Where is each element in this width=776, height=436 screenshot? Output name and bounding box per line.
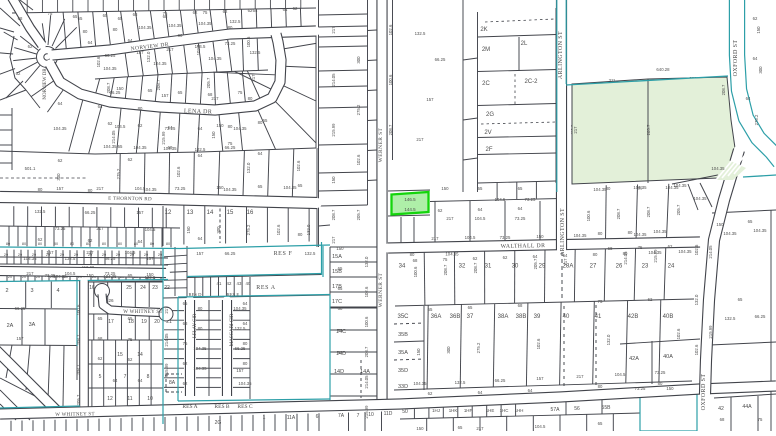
svg-text:40: 40	[563, 314, 570, 320]
svg-text:205.7: 205.7	[533, 258, 538, 269]
svg-text:RES B: RES B	[214, 404, 229, 410]
svg-text:62: 62	[28, 44, 33, 49]
svg-text:80: 80	[248, 96, 253, 101]
svg-text:75: 75	[638, 245, 643, 250]
svg-text:75: 75	[338, 328, 343, 333]
svg-text:104.35: 104.35	[103, 144, 117, 149]
svg-text:80: 80	[628, 230, 633, 235]
svg-text:132.0: 132.0	[306, 224, 311, 235]
svg-text:104.5: 104.5	[615, 372, 626, 377]
svg-text:150: 150	[331, 176, 336, 184]
svg-text:65: 65	[598, 421, 603, 426]
svg-text:150: 150	[216, 123, 224, 128]
svg-text:30: 30	[512, 264, 519, 270]
svg-text:104.35: 104.35	[208, 56, 222, 61]
svg-text:104.35: 104.35	[143, 187, 157, 192]
svg-text:75: 75	[128, 337, 133, 342]
svg-text:13: 13	[187, 210, 194, 216]
svg-text:217: 217	[573, 126, 578, 134]
svg-text:104.35: 104.35	[665, 185, 679, 190]
svg-text:42: 42	[227, 281, 232, 286]
svg-text:64: 64	[113, 378, 118, 383]
svg-text:29: 29	[158, 253, 162, 257]
svg-text:4: 4	[56, 288, 59, 294]
svg-text:14: 14	[207, 210, 214, 216]
svg-text:44A: 44A	[742, 404, 752, 410]
svg-text:275.2: 275.2	[246, 224, 251, 235]
svg-text:150: 150	[536, 234, 544, 239]
svg-text:157: 157	[536, 376, 544, 381]
svg-text:75: 75	[758, 417, 763, 422]
svg-text:2K: 2K	[480, 27, 487, 33]
svg-text:65: 65	[428, 307, 433, 312]
svg-text:39: 39	[534, 314, 541, 320]
svg-text:22: 22	[164, 285, 170, 291]
svg-text:3A: 3A	[29, 322, 36, 328]
svg-text:102.6: 102.6	[676, 328, 681, 339]
svg-text:62: 62	[58, 158, 63, 163]
svg-text:132.0: 132.0	[246, 162, 251, 173]
svg-text:65: 65	[518, 186, 523, 191]
svg-text:104.35: 104.35	[711, 166, 725, 171]
svg-text:RES C: RES C	[237, 404, 252, 410]
svg-text:157: 157	[146, 256, 154, 261]
svg-text:68: 68	[18, 16, 23, 21]
svg-text:208.7: 208.7	[364, 346, 369, 357]
svg-text:217: 217	[96, 226, 104, 231]
svg-text:14D: 14D	[334, 369, 344, 375]
svg-text:73.25: 73.25	[225, 41, 236, 46]
svg-text:36A: 36A	[431, 314, 442, 320]
svg-text:RES E: RES E	[227, 292, 240, 297]
svg-text:104.35: 104.35	[193, 366, 207, 371]
svg-text:40B: 40B	[663, 314, 674, 320]
svg-text:W WHITNEY ST: W WHITNEY ST	[55, 412, 95, 418]
svg-text:104.35: 104.35	[138, 25, 152, 30]
svg-text:75: 75	[48, 11, 53, 16]
svg-text:150: 150	[211, 131, 216, 139]
svg-text:205.7: 205.7	[356, 209, 361, 220]
svg-text:24: 24	[668, 264, 675, 270]
svg-text:65: 65	[263, 118, 268, 123]
svg-text:102.6: 102.6	[176, 166, 181, 177]
svg-text:64: 64	[138, 239, 143, 244]
svg-text:208.7: 208.7	[76, 364, 81, 375]
svg-text:64: 64	[198, 236, 203, 241]
svg-text:102.6: 102.6	[694, 244, 699, 255]
svg-text:17: 17	[108, 319, 114, 325]
svg-text:73.25: 73.25	[55, 226, 66, 231]
svg-text:7: 7	[124, 374, 127, 380]
svg-text:100.6: 100.6	[388, 74, 393, 85]
svg-text:65: 65	[78, 16, 83, 21]
svg-text:1HH: 1HH	[515, 408, 524, 413]
svg-text:80: 80	[243, 341, 248, 346]
svg-text:217: 217	[431, 236, 439, 241]
svg-text:132.0: 132.0	[606, 334, 611, 345]
svg-text:23: 23	[642, 264, 649, 270]
svg-text:73.25: 73.25	[655, 370, 666, 375]
svg-text:150: 150	[86, 273, 94, 278]
svg-text:1HF: 1HF	[464, 408, 473, 413]
svg-text:80: 80	[198, 306, 203, 311]
svg-text:205.7: 205.7	[646, 124, 651, 135]
svg-text:73.25: 73.25	[515, 216, 526, 221]
svg-text:57A: 57A	[551, 407, 561, 413]
svg-text:32: 32	[459, 264, 466, 270]
svg-text:80: 80	[113, 27, 118, 32]
svg-text:62: 62	[128, 357, 133, 362]
svg-text:66.25: 66.25	[105, 256, 116, 261]
svg-text:68: 68	[338, 306, 343, 311]
svg-text:2L: 2L	[521, 41, 528, 47]
svg-text:38A: 38A	[498, 314, 509, 320]
svg-text:35A: 35A	[398, 350, 408, 356]
svg-text:23: 23	[152, 285, 158, 291]
svg-text:64: 64	[198, 153, 203, 158]
svg-text:132.5: 132.5	[250, 50, 261, 55]
svg-text:80: 80	[243, 361, 248, 366]
svg-text:275.2: 275.2	[476, 342, 481, 353]
svg-text:157: 157	[236, 368, 244, 373]
svg-text:11A: 11A	[287, 415, 296, 421]
svg-text:W WHITNEY ST: W WHITNEY ST	[123, 310, 163, 315]
svg-text:1HK: 1HK	[449, 408, 458, 413]
svg-text:56: 56	[574, 406, 580, 412]
svg-text:62: 62	[128, 157, 133, 162]
svg-text:6: 6	[316, 414, 319, 420]
svg-text:640.28: 640.28	[656, 67, 670, 72]
svg-text:208.7: 208.7	[473, 262, 478, 273]
svg-text:150: 150	[416, 348, 421, 356]
svg-text:64: 64	[243, 301, 248, 306]
svg-text:300: 300	[56, 173, 61, 181]
svg-text:64: 64	[243, 321, 248, 326]
svg-text:65: 65	[298, 183, 303, 188]
svg-text:24: 24	[140, 285, 146, 291]
svg-text:157: 157	[136, 210, 144, 215]
svg-text:68: 68	[98, 336, 103, 341]
svg-text:62: 62	[138, 123, 143, 128]
svg-text:73.25: 73.25	[500, 235, 511, 240]
svg-text:29: 29	[4, 253, 8, 257]
svg-text:64: 64	[168, 125, 173, 130]
svg-text:80: 80	[598, 384, 603, 389]
svg-text:64: 64	[478, 207, 483, 212]
svg-text:104.35: 104.35	[413, 381, 427, 386]
svg-text:104.35: 104.35	[233, 306, 247, 311]
svg-text:35C: 35C	[397, 314, 409, 320]
svg-text:62: 62	[16, 71, 21, 76]
svg-text:66.25: 66.25	[225, 145, 236, 150]
svg-text:75: 75	[163, 11, 168, 16]
svg-text:217: 217	[416, 137, 424, 142]
svg-text:15: 15	[227, 210, 234, 216]
svg-text:64: 64	[283, 7, 288, 12]
svg-text:65: 65	[468, 305, 473, 310]
svg-text:62: 62	[648, 297, 653, 302]
svg-text:66.25: 66.25	[755, 314, 766, 319]
svg-text:104.35: 104.35	[753, 228, 767, 233]
svg-text:104.35: 104.35	[634, 232, 647, 237]
svg-text:36B: 36B	[450, 314, 461, 320]
svg-text:104.35: 104.35	[103, 66, 117, 71]
svg-text:RES A: RES A	[182, 404, 197, 410]
svg-text:19: 19	[141, 319, 147, 325]
svg-text:157: 157	[161, 93, 169, 98]
svg-text:62: 62	[108, 121, 113, 126]
svg-text:214.05: 214.05	[164, 333, 169, 347]
svg-text:104.35: 104.35	[723, 231, 737, 236]
svg-text:E THORNTON RD: E THORNTON RD	[108, 197, 152, 203]
svg-text:65: 65	[118, 16, 123, 21]
svg-text:64: 64	[753, 56, 758, 61]
svg-text:11: 11	[127, 396, 132, 402]
svg-text:65: 65	[73, 14, 78, 19]
svg-text:208.7: 208.7	[646, 206, 651, 217]
svg-text:80: 80	[83, 29, 88, 34]
svg-text:132.0: 132.0	[694, 294, 699, 305]
svg-text:100.6: 100.6	[76, 304, 81, 315]
svg-text:214.05: 214.05	[708, 245, 713, 259]
svg-text:65: 65	[748, 219, 753, 224]
svg-text:68: 68	[133, 12, 138, 17]
svg-text:214.05: 214.05	[111, 130, 116, 144]
svg-text:65: 65	[148, 88, 153, 93]
svg-text:2M: 2M	[482, 47, 490, 53]
svg-text:40A: 40A	[663, 354, 673, 360]
svg-text:41: 41	[595, 314, 602, 320]
svg-text:66.25: 66.25	[105, 53, 116, 58]
svg-text:104.35: 104.35	[223, 187, 237, 192]
svg-text:102.6: 102.6	[536, 338, 541, 349]
svg-text:64: 64	[563, 253, 568, 258]
svg-text:66.25: 66.25	[15, 306, 26, 311]
svg-text:150: 150	[336, 246, 344, 251]
svg-text:80: 80	[410, 252, 415, 257]
svg-text:132.5: 132.5	[195, 147, 206, 152]
svg-text:208.7: 208.7	[616, 208, 621, 219]
svg-text:10: 10	[147, 396, 153, 402]
svg-text:75: 75	[598, 299, 603, 304]
svg-text:75: 75	[203, 10, 208, 15]
svg-text:64: 64	[88, 40, 93, 45]
svg-text:215.99: 215.99	[708, 325, 713, 339]
svg-text:62: 62	[38, 237, 43, 242]
svg-text:275.2: 275.2	[754, 114, 759, 125]
svg-text:215.99: 215.99	[364, 405, 369, 419]
svg-text:2: 2	[5, 288, 8, 294]
svg-text:64: 64	[518, 206, 523, 211]
svg-text:208.7: 208.7	[443, 264, 448, 275]
svg-text:217: 217	[166, 47, 174, 52]
svg-text:132.0: 132.0	[364, 256, 369, 267]
svg-text:132.5: 132.5	[230, 19, 241, 24]
svg-text:OXFORD ST: OXFORD ST	[701, 374, 707, 411]
svg-text:62: 62	[223, 9, 228, 14]
svg-text:38B: 38B	[516, 314, 527, 320]
svg-text:64: 64	[258, 151, 263, 156]
svg-text:501.1: 501.1	[25, 166, 36, 171]
svg-text:RES F: RES F	[274, 251, 293, 257]
svg-text:62: 62	[183, 381, 188, 386]
svg-text:104.5: 104.5	[535, 424, 546, 429]
svg-text:55B: 55B	[602, 405, 612, 411]
svg-text:208.7: 208.7	[106, 82, 111, 93]
svg-text:80: 80	[638, 186, 643, 191]
svg-text:217: 217	[164, 306, 169, 314]
svg-text:80: 80	[228, 25, 233, 30]
svg-text:62: 62	[338, 350, 343, 355]
svg-text:208.7: 208.7	[156, 79, 161, 90]
svg-text:65: 65	[128, 273, 133, 278]
svg-text:80: 80	[22, 242, 26, 246]
svg-text:104.35: 104.35	[163, 146, 177, 151]
svg-text:29: 29	[18, 253, 22, 257]
svg-text:208.7: 208.7	[721, 84, 726, 95]
svg-text:68: 68	[720, 417, 725, 422]
svg-text:157: 157	[136, 50, 144, 55]
svg-text:25: 25	[126, 285, 132, 291]
svg-text:150: 150	[186, 226, 191, 234]
svg-text:80: 80	[593, 252, 598, 257]
svg-text:300: 300	[758, 66, 763, 74]
svg-text:217: 217	[96, 186, 104, 191]
svg-text:37: 37	[467, 314, 474, 320]
svg-text:80: 80	[70, 242, 74, 246]
svg-text:50: 50	[402, 409, 408, 415]
svg-text:62: 62	[668, 244, 673, 249]
svg-text:68: 68	[208, 92, 213, 97]
svg-text:132.5: 132.5	[725, 316, 736, 321]
svg-text:15A: 15A	[332, 254, 342, 260]
svg-text:17C: 17C	[332, 299, 342, 305]
svg-text:150: 150	[416, 426, 424, 431]
svg-text:64: 64	[533, 254, 538, 259]
svg-text:104.35: 104.35	[693, 196, 707, 201]
svg-text:217: 217	[576, 374, 584, 379]
svg-text:73.25: 73.25	[105, 271, 116, 276]
svg-text:42A: 42A	[629, 356, 639, 362]
svg-text:104.35: 104.35	[233, 126, 247, 131]
svg-text:132.5: 132.5	[305, 251, 316, 256]
svg-text:104.35: 104.35	[23, 256, 37, 261]
svg-text:102.6: 102.6	[694, 344, 699, 355]
svg-text:104.35: 104.35	[574, 233, 587, 238]
svg-text:132.5: 132.5	[65, 256, 76, 261]
svg-text:2G: 2G	[215, 420, 222, 426]
svg-text:80: 80	[198, 326, 203, 331]
svg-text:34: 34	[399, 264, 406, 270]
svg-text:104.35: 104.35	[193, 346, 207, 351]
svg-text:29: 29	[116, 253, 120, 257]
svg-text:75: 75	[443, 257, 448, 262]
svg-text:42B: 42B	[628, 314, 639, 320]
svg-text:3: 3	[30, 288, 33, 294]
svg-text:73.25: 73.25	[635, 386, 646, 391]
svg-text:104.35: 104.35	[168, 23, 182, 28]
svg-text:80: 80	[178, 33, 183, 38]
svg-text:104.5: 104.5	[145, 227, 156, 232]
svg-text:157: 157	[196, 251, 204, 256]
svg-text:2C-2: 2C-2	[524, 79, 538, 85]
svg-text:215.99: 215.99	[653, 249, 658, 263]
svg-text:64: 64	[528, 388, 533, 393]
svg-text:2C: 2C	[482, 81, 490, 87]
svg-text:68: 68	[608, 246, 613, 251]
svg-text:62: 62	[753, 16, 758, 21]
svg-text:73.25: 73.25	[525, 197, 536, 202]
svg-text:65: 65	[738, 297, 743, 302]
svg-text:104.35: 104.35	[238, 381, 252, 386]
svg-text:104.5: 104.5	[475, 216, 486, 221]
svg-text:73.25: 73.25	[45, 273, 56, 278]
svg-text:11D: 11D	[384, 411, 393, 417]
svg-text:132.5: 132.5	[455, 380, 466, 385]
svg-text:104.5: 104.5	[495, 197, 506, 202]
svg-text:157: 157	[56, 186, 64, 191]
svg-text:26: 26	[616, 264, 623, 270]
svg-text:64: 64	[746, 96, 751, 101]
svg-text:75: 75	[238, 90, 243, 95]
svg-text:NORVIEW DR: NORVIEW DR	[43, 68, 48, 100]
svg-text:66.25: 66.25	[235, 346, 246, 351]
svg-text:WERNER ST: WERNER ST	[378, 272, 384, 307]
svg-text:80: 80	[606, 186, 611, 191]
svg-text:104.35: 104.35	[153, 61, 167, 66]
svg-text:2V: 2V	[484, 130, 491, 136]
svg-text:43: 43	[237, 281, 242, 286]
svg-text:68: 68	[413, 258, 418, 263]
svg-text:104.35: 104.35	[133, 145, 147, 150]
svg-text:217: 217	[446, 216, 454, 221]
svg-text:62: 62	[98, 356, 103, 361]
svg-text:104.5: 104.5	[115, 124, 126, 129]
svg-text:100.6: 100.6	[364, 316, 369, 327]
svg-text:62: 62	[428, 391, 433, 396]
svg-text:100.6: 100.6	[586, 210, 591, 221]
svg-text:208.7: 208.7	[76, 334, 81, 345]
svg-text:35D: 35D	[398, 368, 408, 374]
svg-text:65: 65	[103, 13, 108, 18]
svg-text:62: 62	[503, 255, 508, 260]
svg-text:41: 41	[217, 281, 222, 286]
svg-text:215.99: 215.99	[161, 131, 166, 145]
svg-text:73.25: 73.25	[175, 186, 186, 191]
svg-text:65: 65	[178, 90, 183, 95]
svg-text:104.5: 104.5	[65, 271, 76, 276]
svg-text:80: 80	[150, 242, 154, 246]
svg-text:217: 217	[331, 26, 336, 34]
svg-text:150: 150	[116, 86, 124, 91]
svg-text:80: 80	[102, 242, 106, 246]
svg-text:62: 62	[88, 238, 93, 243]
svg-text:64: 64	[98, 104, 103, 109]
svg-text:65: 65	[183, 301, 188, 306]
svg-text:300: 300	[216, 226, 221, 234]
svg-text:26: 26	[108, 298, 114, 303]
svg-text:217: 217	[26, 271, 34, 276]
svg-text:157: 157	[46, 250, 54, 255]
svg-text:132.5: 132.5	[235, 326, 246, 331]
svg-text:7A: 7A	[338, 413, 345, 419]
svg-text:1HE: 1HE	[486, 408, 495, 413]
svg-text:157: 157	[16, 336, 24, 341]
svg-text:1: 1	[263, 415, 266, 421]
svg-text:102.6: 102.6	[276, 224, 281, 235]
svg-text:12: 12	[107, 396, 113, 402]
svg-text:80: 80	[118, 242, 122, 246]
